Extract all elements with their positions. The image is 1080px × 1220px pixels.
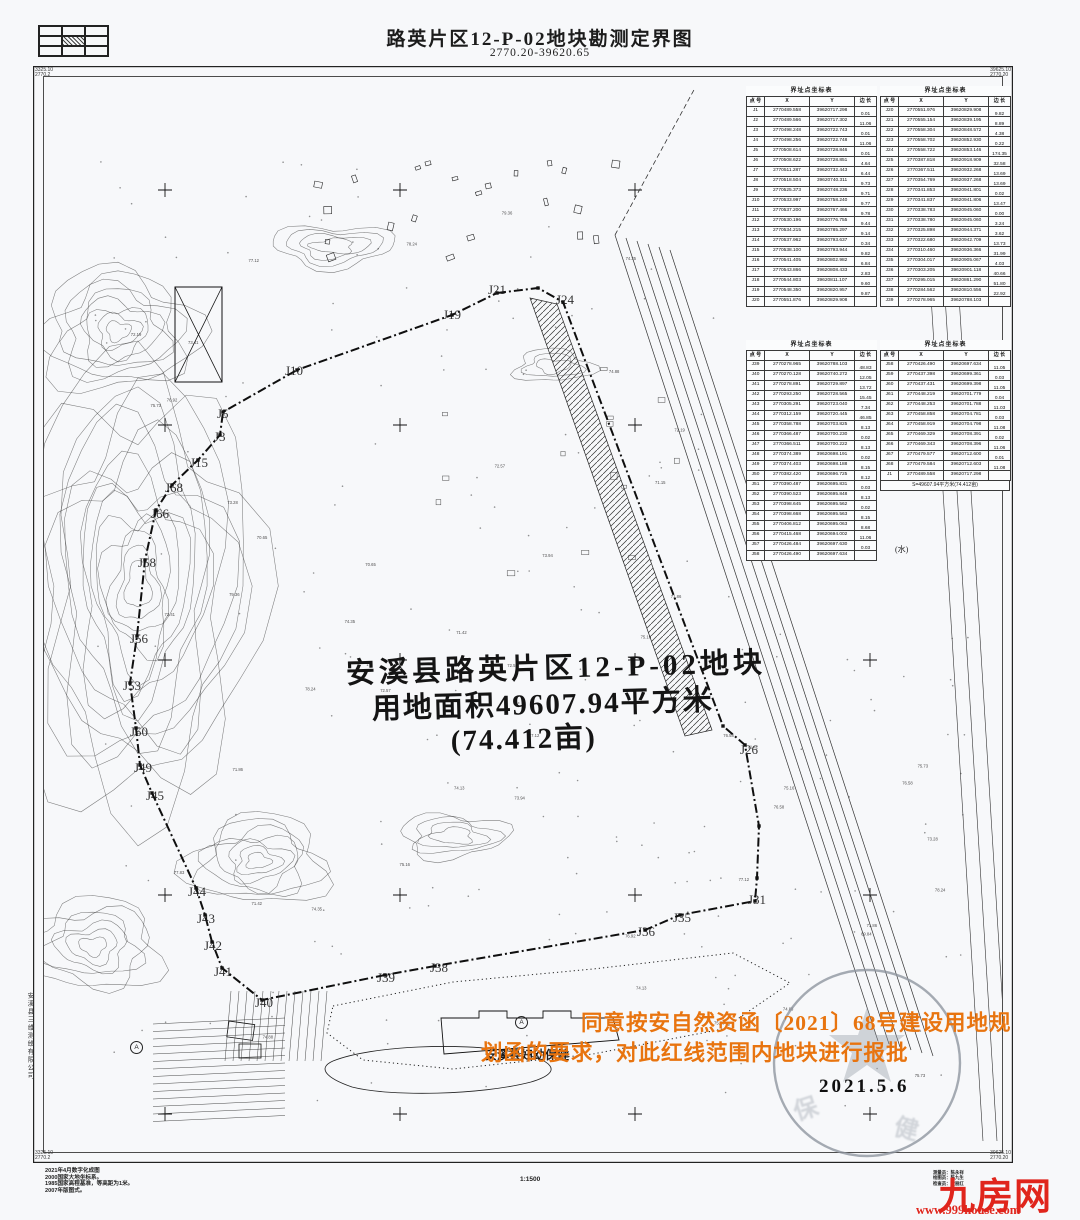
parcel-area-mu: (74.412亩) xyxy=(450,709,751,759)
corner-coordinate-bottom-left: 3325.102770.2 xyxy=(35,1151,53,1161)
table-row: J192770548.35039620820.9579.87 xyxy=(747,287,877,297)
svg-text:76.58: 76.58 xyxy=(902,781,913,786)
table-column-header: X xyxy=(899,351,944,361)
svg-text:77.83: 77.83 xyxy=(174,870,185,875)
table-column-header: Y xyxy=(944,97,989,107)
table-row: J92770525.37339620748.2369.71 xyxy=(747,187,877,197)
table-column-header: X xyxy=(899,97,944,107)
svg-text:74.13: 74.13 xyxy=(454,786,465,791)
svg-text:78.24: 78.24 xyxy=(935,888,946,893)
table-row: J502770382.42039620696.7258.12 xyxy=(747,471,877,481)
table-row: J662770469.34339620708.39611.06 xyxy=(881,441,1011,451)
table-row: J62770508.62239620728.8514.64 xyxy=(747,157,877,167)
table-row: J682770479.58439620712.60311.08 xyxy=(881,461,1011,471)
survey-note: 2007年版图式。 xyxy=(45,1188,133,1195)
table-row: J72770511.28739620732.4436.44 xyxy=(747,167,877,177)
svg-text:73.94: 73.94 xyxy=(542,553,553,558)
table-row: J212770555.15439620839.1958.89 xyxy=(881,117,1011,127)
svg-text:75.73: 75.73 xyxy=(918,764,929,769)
table-column-header: X xyxy=(765,97,810,107)
table-row: J172770543.86639620808.4332.83 xyxy=(747,267,877,277)
svg-text:74.88: 74.88 xyxy=(609,369,620,374)
svg-text:77.12: 77.12 xyxy=(249,258,260,263)
table-row: J542770398.66839620695.5638.15 xyxy=(747,511,877,521)
table-row: J562770415.46839620694.00211.06 xyxy=(747,531,877,541)
sheet-number: 2770.20-39620.65 xyxy=(0,47,1080,59)
svg-text:74.13: 74.13 xyxy=(636,985,647,990)
approval-note-line2: 划函的要求，对此红线范围内地块进行报批 xyxy=(481,1036,909,1067)
svg-text:75.16: 75.16 xyxy=(400,862,411,867)
corner-coordinate-top-left: 3325.102770.2 xyxy=(35,68,53,78)
svg-text:73.94: 73.94 xyxy=(514,795,525,800)
svg-text:70.65: 70.65 xyxy=(257,535,268,540)
table-row: J642770458.91939620704.79811.08 xyxy=(881,421,1011,431)
circle-a-symbol: A xyxy=(130,1041,143,1054)
circle-a-symbol: A xyxy=(515,1016,528,1029)
table-row: J292770341.83739620941.80613.47 xyxy=(881,197,1011,207)
area-summary: S=49607.94平方米(74.412亩) xyxy=(880,480,1010,491)
survey-map-sheet: 路英片区12-P-02地块勘测定界图 2770.20-39620.65 74.3… xyxy=(0,0,1080,1220)
table-row: J312770338.78039620945.0603.24 xyxy=(881,217,1011,227)
table-column-header: 点 号 xyxy=(747,97,765,107)
table-column-header: Y xyxy=(810,97,855,107)
table-row: J242770558.72239620853.146174.35 xyxy=(881,147,1011,157)
svg-text:70.65: 70.65 xyxy=(365,562,376,567)
table-row: J572770426.48439620697.6300.03 xyxy=(747,541,877,551)
svg-text:76.92: 76.92 xyxy=(625,934,636,939)
table-row: J432770305.29139620723.0407.34 xyxy=(747,401,877,411)
table-row: J332770322.68039620942.70913.73 xyxy=(881,237,1011,247)
coordinate-table: 界址点坐标表点 号XY边 长J582770426.49039620697.634… xyxy=(880,340,1011,481)
svg-text:74.35: 74.35 xyxy=(312,906,323,911)
svg-text:77.12: 77.12 xyxy=(739,877,750,882)
table-row: J352770304.01739620905.0674.03 xyxy=(881,257,1011,267)
table-row: J532770398.64539620695.5620.02 xyxy=(747,501,877,511)
table-row: J492770374.40339620698.1888.15 xyxy=(747,461,877,471)
table-row: J12770489.55839620717.2980.01 xyxy=(747,107,877,117)
table-row: J12770489.55839620717.298 xyxy=(881,471,1011,481)
svg-text:71.42: 71.42 xyxy=(456,630,467,635)
table-row: J32770498.24839620722.7430.01 xyxy=(747,127,877,137)
scale-label: 1:1500 xyxy=(520,1176,540,1183)
table-row: J302770338.78339620945.0600.00 xyxy=(881,207,1011,217)
table-title: 界址点坐标表 xyxy=(880,340,1011,350)
company-name-vertical: 安溪县三维测绘有限公司 xyxy=(24,992,34,1080)
svg-text:71.15: 71.15 xyxy=(655,480,666,485)
svg-text:78.24: 78.24 xyxy=(305,687,316,692)
table-row: J252770387.81839620918.90932.58 xyxy=(881,157,1011,167)
table-row: J672770479.57739620712.6000.01 xyxy=(881,451,1011,461)
table-row: J442770312.15939620720.44546.85 xyxy=(747,411,877,421)
survey-note: 1985国家高程基准，等高距为1米。 xyxy=(45,1181,133,1188)
website-url: www.999house.com xyxy=(916,1203,1020,1218)
table-row: J582770426.49039620697.63411.05 xyxy=(881,361,1011,371)
svg-text:75.16: 75.16 xyxy=(784,786,795,791)
survey-notes: 2021年4月数字化成图 2000国家大地坐标系。 1985国家高程基准，等高距… xyxy=(45,1168,133,1194)
map-frame: 74.3573.2875.1671.4276.5874.8870.6577.12… xyxy=(33,66,1013,1163)
table-row: J152770538.10039620793.9449.82 xyxy=(747,247,877,257)
table-row: J122770530.19639620776.7559.44 xyxy=(747,217,877,227)
svg-text:79.36: 79.36 xyxy=(229,592,240,597)
table-row: J22770489.56639620717.30211.06 xyxy=(747,117,877,127)
svg-text:79.36: 79.36 xyxy=(502,211,513,216)
table-column-header: 边 长 xyxy=(855,97,877,107)
svg-text:76.92: 76.92 xyxy=(167,397,178,402)
table-row: J392770278.96539620788.103 xyxy=(881,297,1011,307)
coordinate-table: 界址点坐标表点 号XY边 长J392770278.96539620788.103… xyxy=(746,340,877,561)
table-row: J522770390.52339620695.8488.13 xyxy=(747,491,877,501)
table-row: J272770354.76939620937.26813.69 xyxy=(881,177,1011,187)
table-row: J202770551.87639620829.908 xyxy=(747,297,877,307)
table-column-header: Y xyxy=(810,351,855,361)
table-column-header: X xyxy=(765,351,810,361)
svg-text:72.19: 72.19 xyxy=(131,332,142,337)
table-row: J382770284.56239620810.55622.92 xyxy=(881,287,1011,297)
svg-text:71.86: 71.86 xyxy=(867,923,878,928)
table-row: J452770358.78839620703.8258.13 xyxy=(747,421,877,431)
table-row: J422770293.25039620728.56515.45 xyxy=(747,391,877,401)
table-row: J82770518.50439620740.3119.73 xyxy=(747,177,877,187)
table-row: J362770303.20539620901.11840.66 xyxy=(881,267,1011,277)
corner-coordinate-bottom-right: 39625.102770.20 xyxy=(990,1151,1011,1161)
table-title: 界址点坐标表 xyxy=(746,340,877,350)
svg-text:74.35: 74.35 xyxy=(626,256,637,261)
table-row: J472770366.51139620700.2228.13 xyxy=(747,441,877,451)
table-row: J412770278.89139620729.89713.72 xyxy=(747,381,877,391)
table-row: J262770367.51139620932.26813.69 xyxy=(881,167,1011,177)
table-column-header: 边 长 xyxy=(989,351,1011,361)
table-row: J102770533.99739620758.2409.77 xyxy=(747,197,877,207)
table-column-header: 边 长 xyxy=(989,97,1011,107)
table-column-header: 边 长 xyxy=(855,351,877,361)
table-row: J282770341.85339620941.8010.02 xyxy=(881,187,1011,197)
table-row: J232770558.70239620852.9300.22 xyxy=(881,137,1011,147)
table-row: J552770406.81239620695.0638.68 xyxy=(747,521,877,531)
svg-text:75.73: 75.73 xyxy=(151,403,162,408)
approval-note-line1: 同意按安自然资函〔2021〕68号建设用地规 xyxy=(581,1006,1012,1037)
table-row: J322770325.89839620944.3713.62 xyxy=(881,227,1011,237)
table-row: J142770537.96239620793.6370.34 xyxy=(747,237,877,247)
table-row: J132770534.21539620785.2979.14 xyxy=(747,227,877,237)
table-row: J402770270.12839620740.27212.05 xyxy=(747,371,877,381)
table-row: J582770426.49039620697.634 xyxy=(747,551,877,561)
svg-text:71.42: 71.42 xyxy=(252,901,263,906)
table-row: J652770469.32939620708.3910.02 xyxy=(881,431,1011,441)
svg-text:73.28: 73.28 xyxy=(927,837,938,842)
table-row: J372770295.01539620861.29051.80 xyxy=(881,277,1011,287)
svg-text:74.35: 74.35 xyxy=(345,619,356,624)
table-row: J482770374.38939620698.1910.02 xyxy=(747,451,877,461)
table-row: J162770541.40539620802.9826.84 xyxy=(747,257,877,267)
coordinate-table: 界址点坐标表点 号XY边 长J12770489.55839620717.2980… xyxy=(746,86,877,307)
table-row: J612770448.21939620701.7790.04 xyxy=(881,391,1011,401)
svg-text:72.57: 72.57 xyxy=(495,464,506,469)
table-row: J342770310.46039620936.36631.99 xyxy=(881,247,1011,257)
table-title: 界址点坐标表 xyxy=(880,86,1011,96)
svg-text:74.88: 74.88 xyxy=(263,1035,274,1040)
table-row: J202770551.97639620829.9089.82 xyxy=(881,107,1011,117)
table-column-header: 点 号 xyxy=(881,351,899,361)
table-row: J112770537.20039620767.4669.78 xyxy=(747,207,877,217)
svg-text:78.24: 78.24 xyxy=(407,242,418,247)
table-row: J592770437.39839620699.3610.03 xyxy=(881,371,1011,381)
table-row: J42770498.25639620722.74811.06 xyxy=(747,137,877,147)
table-row: J392770278.96539620788.10348.83 xyxy=(747,361,877,371)
table-row: J602770437.43139620699.39811.05 xyxy=(881,381,1011,391)
table-row: J52770508.61439620728.8460.01 xyxy=(747,147,877,157)
svg-text:71.86: 71.86 xyxy=(233,767,244,772)
survey-note: 2021年4月数字化成图 xyxy=(45,1168,133,1175)
table-column-header: 点 号 xyxy=(747,351,765,361)
table-column-header: Y xyxy=(944,351,989,361)
table-row: J512770390.48739620695.8310.03 xyxy=(747,481,877,491)
table-row: J622770448.25339620701.78811.03 xyxy=(881,401,1011,411)
svg-text:73.41: 73.41 xyxy=(165,612,176,617)
table-column-header: 点 号 xyxy=(881,97,899,107)
table-title: 界址点坐标表 xyxy=(746,86,877,96)
table-row: J222770558.30439620848.5724.38 xyxy=(881,127,1011,137)
table-row: J632770458.85839620704.7810.03 xyxy=(881,411,1011,421)
table-row: J182770544.80339620811.1079.60 xyxy=(747,277,877,287)
coordinate-table: 界址点坐标表点 号XY边 长J202770551.97639620829.908… xyxy=(880,86,1011,307)
svg-text:73.28: 73.28 xyxy=(227,500,238,505)
svg-text:72.19: 72.19 xyxy=(674,428,685,433)
stamp-date: 2021.5.6 xyxy=(819,1076,910,1098)
corner-coordinate-top-right: 39625.102770.20 xyxy=(990,68,1011,78)
table-row: J462770366.48739620700.2300.02 xyxy=(747,431,877,441)
svg-text:76.58: 76.58 xyxy=(774,804,785,809)
